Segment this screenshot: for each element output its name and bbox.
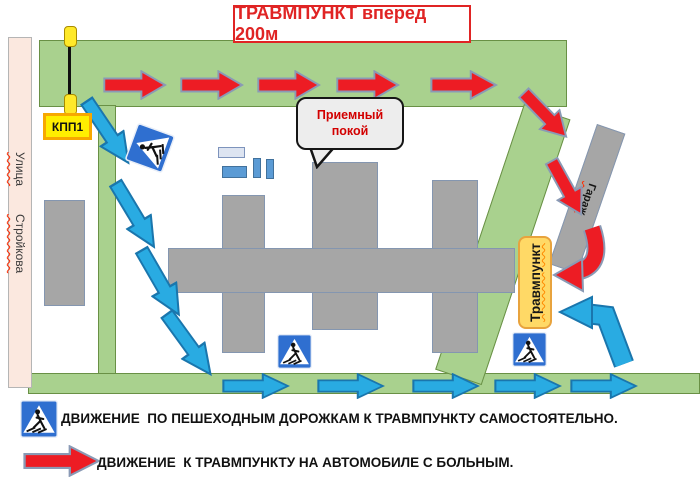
hospital-site-map: ТРАВМПУНКТ вперед 200м Улица Стройкова Г… xyxy=(0,0,700,479)
trauma-center-label-text: Травмпункт xyxy=(528,243,543,322)
deco-rect xyxy=(253,158,261,178)
deco-rect xyxy=(266,159,274,179)
car-route-arrow xyxy=(180,70,244,100)
street-name-line2: Стройкова xyxy=(13,214,27,273)
boom-barrier-post-bottom xyxy=(64,94,77,115)
legend-car-arrow-icon xyxy=(23,445,101,477)
legend-pedestrian-sign-icon xyxy=(20,400,58,438)
deco-rect xyxy=(222,166,247,178)
car-route-arrow xyxy=(336,70,400,100)
checkpoint-kpp1-label: КПП1 xyxy=(43,113,92,140)
car-route-arrow xyxy=(103,70,167,100)
building-wing-middle xyxy=(312,162,378,330)
pedestrian-route-arrow xyxy=(222,373,290,399)
reception-callout-line1: Приемный xyxy=(317,108,383,124)
trauma-center-label: Травмпункт xyxy=(518,236,552,329)
street-bar: Улица Стройкова xyxy=(8,37,32,388)
reception-callout: Приемный покой xyxy=(296,97,404,150)
deco-rect xyxy=(218,147,245,158)
pedestrian-route-arrow xyxy=(412,373,480,399)
pedestrian-crossing-sign-icon xyxy=(277,334,312,369)
boom-barrier-post-top xyxy=(64,26,77,47)
legend-car-text: ДВИЖЕНИЕ К ТРАВМПУНКТУ НА АВТОМОБИЛЕ С Б… xyxy=(97,455,513,470)
boom-barrier-rod xyxy=(68,44,71,96)
car-route-arrow xyxy=(257,70,321,100)
reception-callout-line2: покой xyxy=(332,124,369,140)
building-main-bar xyxy=(168,248,515,293)
street-name-line1: Улица xyxy=(13,152,27,186)
pedestrian-bent-arrow xyxy=(545,285,660,380)
pedestrian-crossing-sign-icon xyxy=(512,332,547,367)
car-route-arrow xyxy=(430,70,498,100)
pedestrian-route-arrow xyxy=(317,373,385,399)
building-left-small xyxy=(44,200,85,306)
pedestrian-crossing-sign-icon xyxy=(124,122,175,173)
legend-pedestrian-text: ДВИЖЕНИЕ ПО ПЕШЕХОДНЫМ ДОРОЖКАМ К ТРАВМП… xyxy=(61,411,618,426)
map-title: ТРАВМПУНКТ вперед 200м xyxy=(233,5,471,43)
